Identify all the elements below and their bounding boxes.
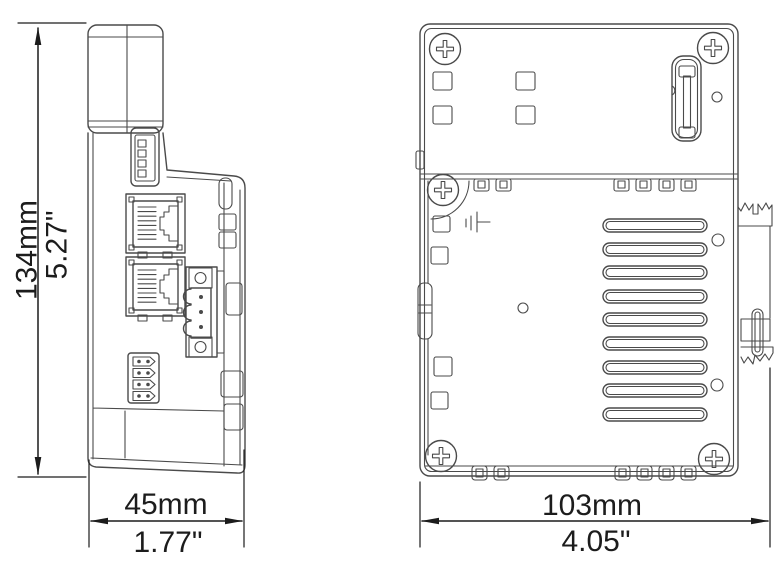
drawing-svg: 134mm 5.27" 45mm 1.77" 103mm 4.05" [0, 0, 783, 569]
depth-dimension: 103mm 4.05" [420, 368, 770, 558]
terminal-pin [199, 310, 203, 314]
top-cap-outline [88, 25, 163, 133]
screw-fillet [431, 181, 469, 219]
arrowhead-right [225, 518, 243, 525]
edge-tab [219, 232, 236, 248]
pilot-hole [518, 303, 528, 313]
arrowhead-up [35, 27, 42, 45]
vent-slots [603, 219, 707, 421]
top-cap-panel-lines [88, 25, 163, 133]
screw-bottom-left [426, 441, 457, 472]
divider-tab [659, 179, 674, 191]
ground-symbol [466, 212, 490, 232]
vent-slot [603, 384, 707, 397]
divider-tab [681, 179, 696, 191]
screw-top-left [430, 34, 461, 65]
width-label-metric: 45mm [124, 488, 207, 521]
pin-header-row [133, 369, 155, 378]
screw-top-right [698, 33, 729, 64]
screw-bottom-right [699, 444, 730, 475]
slot-key-top [679, 66, 695, 77]
bottom-tab [615, 466, 630, 480]
plate-divider [421, 174, 737, 179]
arrowhead-left [90, 518, 108, 525]
ethernet-port-1 [126, 194, 185, 253]
vent-slot [603, 408, 707, 421]
vent-slot [603, 290, 707, 303]
left-edge-features [418, 181, 452, 455]
divider-tab [614, 179, 629, 191]
arrowhead-down [35, 457, 42, 475]
pilot-hole [711, 379, 723, 391]
divider-tabs [474, 179, 696, 191]
square-hole [516, 106, 535, 124]
divider-tab [636, 179, 651, 191]
terminal-screw-hole-top [195, 273, 206, 284]
ethernet-port-2 [126, 257, 185, 316]
height-dimension: 134mm 5.27" [11, 23, 87, 477]
service-connector-contact [138, 140, 146, 147]
bottom-tab [494, 466, 509, 480]
pin-header-connector [128, 353, 159, 403]
front-view [88, 25, 245, 473]
edge-clip [431, 247, 448, 264]
power-terminal-block [184, 267, 225, 357]
pilot-hole [712, 234, 724, 246]
square-hole [516, 72, 535, 90]
pin-header-row [133, 380, 155, 389]
height-label-imperial: 5.27" [41, 210, 74, 279]
edge-clip [434, 357, 452, 376]
terminal-screw-mount-top [189, 268, 212, 288]
square-hole [433, 106, 452, 124]
vent-slot [603, 361, 707, 374]
edge-clip [431, 392, 448, 409]
service-connector [131, 128, 159, 186]
dimension-drawing: 134mm 5.27" 45mm 1.77" 103mm 4.05" [0, 0, 783, 569]
terminal-screw-hole-bottom [195, 342, 206, 353]
depth-label-metric: 103mm [542, 489, 642, 522]
top-plate-holes [433, 72, 535, 124]
terminal-pin [199, 295, 203, 299]
width-dimension: 45mm 1.77" [89, 450, 244, 559]
vent-slot [603, 313, 707, 326]
edge-tab [219, 178, 232, 209]
terminal-plug-body [184, 288, 212, 338]
din-clip-pin [755, 312, 760, 352]
depth-label-imperial: 4.05" [561, 525, 630, 558]
bottom-tab [659, 466, 674, 480]
pin-header-row [133, 392, 155, 401]
terminal-screw-mount-bottom [189, 337, 212, 357]
side-clip-tabs [219, 178, 243, 430]
pilot-hole [712, 92, 722, 102]
arrowhead-left [421, 518, 439, 525]
divider-tab [474, 179, 489, 191]
vent-slot [603, 219, 707, 232]
terminal-pin [199, 325, 203, 329]
bottom-tab [637, 466, 652, 480]
edge-tab [219, 214, 236, 230]
din-clip-pin-slot [752, 309, 763, 356]
vent-slot [603, 266, 707, 279]
bottom-tab [472, 466, 487, 480]
front-view-body-outline [88, 133, 245, 473]
expansion-slot [672, 56, 701, 141]
front-view-top-cap [88, 25, 163, 133]
vent-slot [603, 243, 707, 256]
din-rail-clip [738, 203, 773, 364]
height-label-metric: 134mm [11, 200, 44, 300]
arrowhead-right [751, 518, 769, 525]
width-label-imperial: 1.77" [133, 526, 202, 559]
slot-key-bar [684, 76, 691, 128]
divider-tab [496, 179, 511, 191]
service-connector-contact [138, 160, 146, 167]
square-hole [433, 72, 452, 90]
side-view-inner-outline [425, 29, 734, 472]
vent-slot [603, 337, 707, 350]
terminal-side-plate [217, 271, 224, 353]
bottom-tabs [425, 466, 733, 480]
side-view [416, 24, 773, 480]
service-connector-contact [138, 170, 146, 177]
service-connector-contact [138, 150, 146, 157]
pin-header-row [133, 357, 155, 366]
din-clip-upper-teeth [738, 203, 772, 226]
bottom-tab [681, 466, 696, 480]
